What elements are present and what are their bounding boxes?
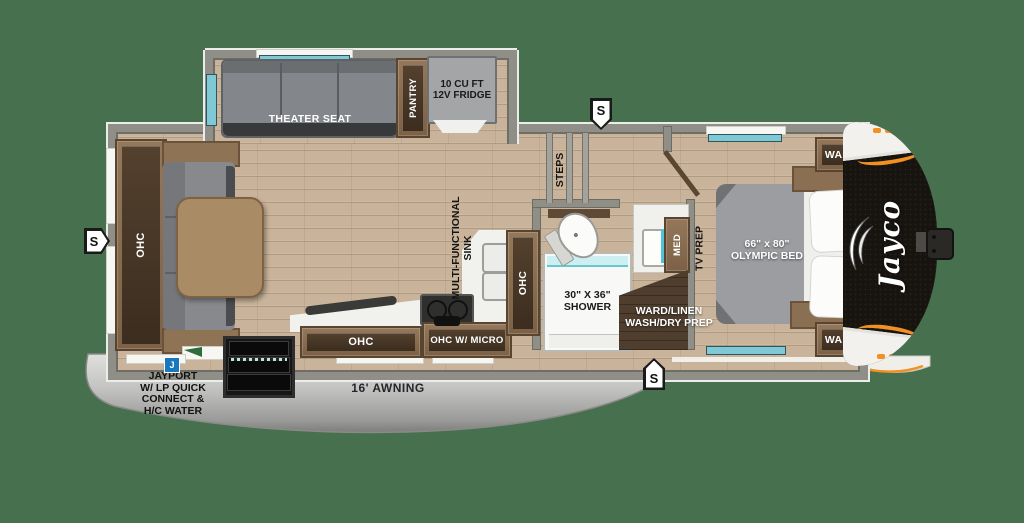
jayport-line: H/C WATER [114,406,232,418]
jayport-label: JAYPORT W/ LP QUICK CONNECT & H/C WATER [114,371,232,417]
bed-label: 66" x 80" OLYMPIC BED [716,236,818,264]
dinette-table [176,197,264,298]
theater-seat: THEATER SEAT [221,59,399,138]
tv-prep-label: TV PREP [693,213,706,285]
speaker-marker-top: S [590,98,612,130]
step-tread [227,374,291,391]
cap-marker-light [889,354,897,359]
slide-side-window [206,74,217,126]
step-grip-strip [231,358,287,361]
shower: 30" X 36" SHOWER [543,252,632,352]
door-wall-stub [663,126,672,152]
bed-label-line: OLYMPIC BED [731,250,803,262]
marker-letter: S [84,228,110,254]
entry-door-threshold [182,346,228,360]
ward-linen-label: WARD/LINEN WASH/DRY PREP [610,303,728,331]
step-edge [546,133,553,203]
bedroom-window-glass [706,346,786,355]
cap-marker-light [877,354,885,359]
range-accessory [434,316,460,326]
ward-linen-line: WARD/LINEN [636,305,703,318]
marker-letter: S [643,358,665,390]
rv-floorplan: 16' AWNING J JAYPORT W/ LP QUICK CONNECT… [0,0,1024,523]
kitchen-ohc: OHC [300,326,422,358]
speaker-marker-left: S [84,228,110,254]
theater-seat-backrest [223,61,397,73]
fridge-label-line: 12V FRIDGE [433,90,491,102]
blanket-fold [716,184,736,208]
kitchen-ohc-label: OHC [302,328,420,356]
jayport-badge: J [164,357,180,373]
tall-ohc-label: OHC [472,268,574,298]
bed-label-line: 66" x 80" [745,238,790,250]
hitch-bolt [932,249,936,253]
jayco-logo: Jayco [871,179,907,309]
step-tread [228,357,290,373]
speaker-marker-bottom: S [643,358,665,390]
hitch-bolt [932,235,936,239]
fridge-label-line: 10 CU FT [440,79,483,91]
cap-marker-light [885,128,893,133]
bedroom-window-glass [708,134,782,142]
entry-steps [223,336,295,398]
marker-letter: S [590,98,612,130]
pantry-cabinet: PANTRY [396,58,430,138]
ward-linen-line: WASH/DRY PREP [625,317,713,330]
med-cabinet: MED [664,217,690,273]
steps-label: STEPS [553,138,567,202]
tall-ohc-cabinet: OHC [506,230,540,336]
fridge-label: 10 CU FT 12V FRIDGE [429,58,495,122]
awning-label: 16' AWNING [328,380,448,396]
multi-sink-label-line: MULTI-FUNCTIONAL [450,196,462,299]
rear-ohc-cabinet: OHC [115,139,167,351]
step-edge [566,133,573,203]
underbody-trim [672,357,846,362]
shower-label-line: SHOWER [564,301,611,313]
step-edge [582,133,589,203]
step-tread [229,341,289,356]
refrigerator: 10 CU FT 12V FRIDGE [427,56,497,124]
ohc-with-micro-label: OHC W/ MICRO [424,324,510,356]
shower-ledge [549,334,626,348]
cap-marker-light [873,128,881,133]
jayport-line: CONNECT & [114,394,232,406]
ohc-with-micro: OHC W/ MICRO [422,322,512,358]
hitch-pin-box [926,228,954,260]
multi-sink-label-line: SINK [462,235,474,260]
theater-seat-label: THEATER SEAT [223,113,397,125]
